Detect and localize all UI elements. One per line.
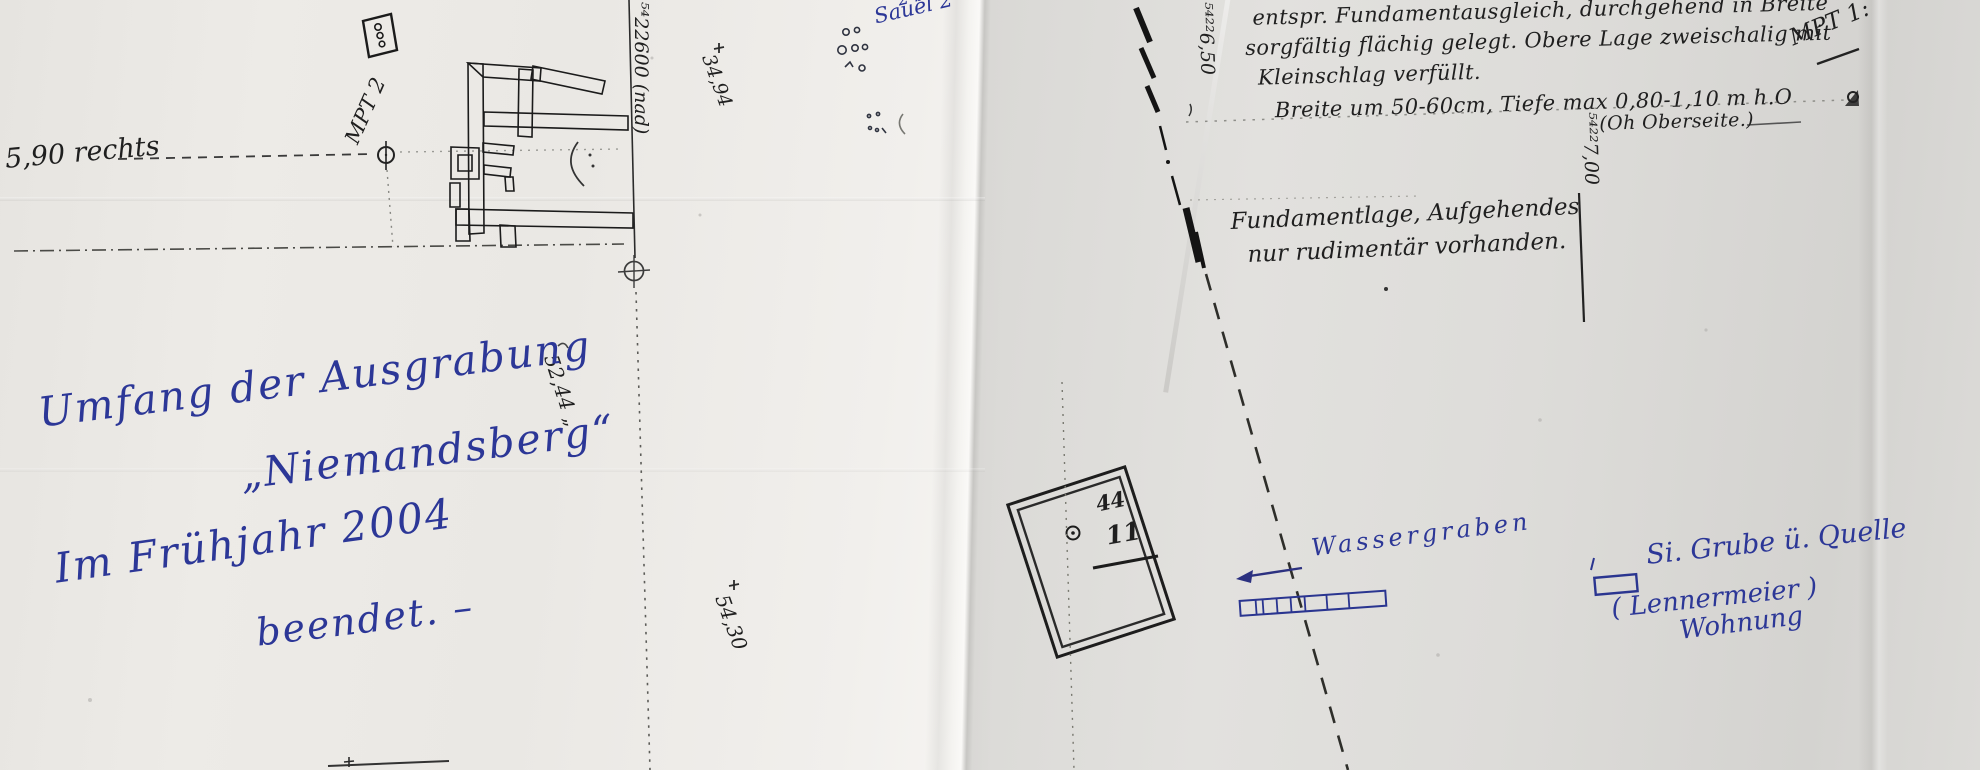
dotted-gridline-extension xyxy=(636,292,650,770)
grid-label-5422650: ⁵⁴²²6,50 xyxy=(1194,2,1216,75)
ink-dot xyxy=(1384,287,1388,291)
feature-point-icon xyxy=(1067,527,1080,540)
feature-rectangle xyxy=(1008,467,1174,657)
sketch-bracket xyxy=(571,142,584,186)
sketch-dot xyxy=(589,154,592,157)
scale-bar-icon xyxy=(1240,591,1387,616)
feature-number-bottom: 11 xyxy=(1104,518,1143,550)
survey-point-2-icon xyxy=(378,141,394,170)
tick-mark xyxy=(1591,558,1594,570)
legend-dots-icon xyxy=(363,14,397,57)
dotted-line xyxy=(387,170,393,247)
sketch-dot xyxy=(592,165,595,168)
construction-note-line5: (Oh Oberseite.) xyxy=(1599,103,1834,139)
posthole-icons xyxy=(838,27,886,133)
gridline-5422700-tick xyxy=(1579,193,1584,322)
scanned-excavation-plan: 5,90 rechts MPT 2 ⁵⁴22600 (nad) 34,94 52… xyxy=(0,0,1980,770)
dotted-crease-line xyxy=(1062,382,1074,770)
tape-marks-icon xyxy=(1136,8,1204,268)
feature-number-top: 44 xyxy=(1094,488,1127,516)
plus-marks xyxy=(714,43,739,590)
tick-mark xyxy=(899,114,905,134)
building-plan xyxy=(450,63,633,247)
construction-note: entspr. Fundamentausgleich, durchgehend … xyxy=(1244,0,1834,148)
dash-dot-line xyxy=(14,244,624,251)
faint-dotted-line xyxy=(1190,196,1420,200)
tick-mark xyxy=(1189,104,1191,116)
grid-label-5422600: ⁵⁴22600 (nad) xyxy=(630,2,650,134)
grid-cross-icon xyxy=(618,255,650,288)
survey-point-1-icon xyxy=(1845,90,1859,106)
fold-dashed-line xyxy=(1206,274,1348,770)
